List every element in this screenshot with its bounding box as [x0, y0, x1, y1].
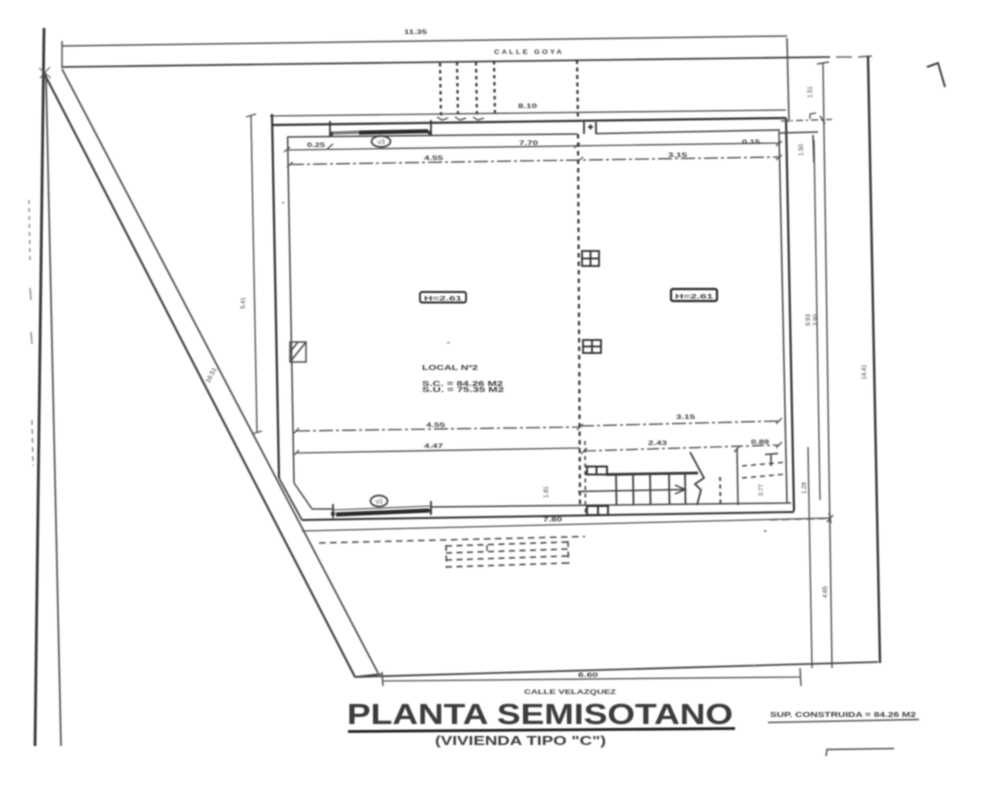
svg-text:1.28: 1.28 — [802, 482, 808, 494]
svg-text:SUP. CONSTRUIDA = 84.26 M2: SUP. CONSTRUIDA = 84.26 M2 — [770, 712, 916, 719]
svg-text:H=2.61: H=2.61 — [424, 296, 463, 303]
svg-text:3.15: 3.15 — [676, 414, 696, 421]
svg-text:7.70: 7.70 — [519, 140, 539, 147]
svg-text:0.15: 0.15 — [742, 139, 761, 146]
svg-text:14.41: 14.41 — [862, 364, 868, 380]
svg-text:0.25: 0.25 — [307, 142, 326, 149]
svg-text:2.90: 2.90 — [814, 314, 820, 326]
svg-text:11.35: 11.35 — [404, 29, 428, 36]
svg-text:0.77: 0.77 — [759, 484, 765, 496]
svg-text:H=2.61: H=2.61 — [675, 294, 714, 301]
svg-text:CALLE GOYA: CALLE GOYA — [494, 49, 564, 56]
svg-text:(VIVIENDA TIPO "C"): (VIVIENDA TIPO "C") — [435, 733, 606, 748]
svg-text:16.51: 16.51 — [205, 366, 219, 384]
svg-text:8.10: 8.10 — [518, 103, 538, 110]
svg-text:2.43: 2.43 — [648, 440, 668, 447]
svg-text:4.55: 4.55 — [426, 422, 446, 429]
svg-text:1.81: 1.81 — [544, 486, 550, 498]
svg-text:4.55: 4.55 — [424, 155, 444, 162]
svg-text:LOCAL Nº2: LOCAL Nº2 — [422, 365, 478, 372]
svg-text:4.65: 4.65 — [823, 586, 829, 598]
svg-text:5.41: 5.41 — [241, 297, 247, 309]
svg-text:0.89: 0.89 — [751, 439, 770, 446]
svg-text:6.60: 6.60 — [578, 672, 598, 679]
svg-text:1.51: 1.51 — [808, 86, 814, 98]
svg-text:CALLE VELAZQUEZ: CALLE VELAZQUEZ — [524, 689, 616, 696]
svg-text:V3: V3 — [377, 139, 386, 146]
svg-text:4.47: 4.47 — [424, 443, 444, 450]
svg-text:7.80: 7.80 — [543, 517, 563, 524]
svg-text:S.U. = 75.35 M2: S.U. = 75.35 M2 — [422, 387, 504, 394]
svg-text:1.50: 1.50 — [799, 144, 805, 156]
svg-text:PLANTA SEMISOTANO: PLANTA SEMISOTANO — [347, 699, 733, 731]
svg-text:3.15: 3.15 — [668, 152, 688, 159]
svg-text:V2: V2 — [375, 499, 384, 506]
svg-text:9.93: 9.93 — [806, 314, 812, 326]
